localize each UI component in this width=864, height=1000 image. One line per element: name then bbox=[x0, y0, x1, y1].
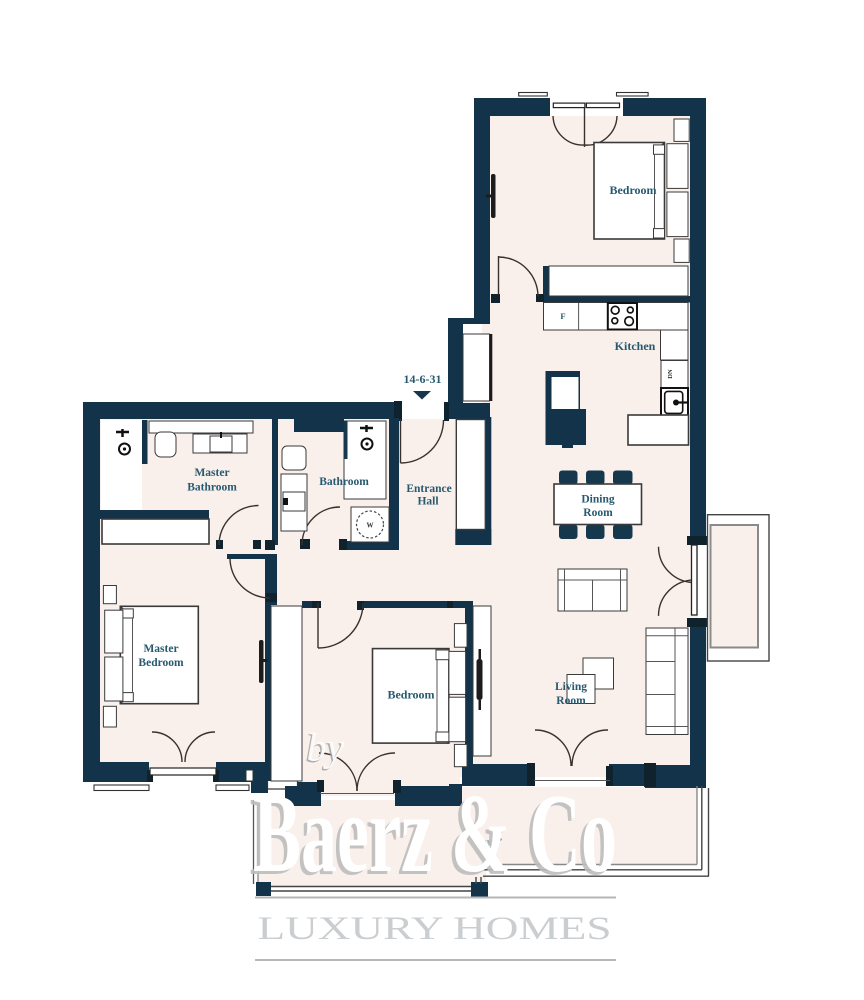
svg-text:Bedroom: Bedroom bbox=[387, 688, 434, 702]
svg-text:Entrance: Entrance bbox=[406, 483, 451, 495]
svg-text:Master: Master bbox=[194, 467, 229, 479]
svg-text:F: F bbox=[560, 311, 565, 321]
svg-text:DN: DN bbox=[667, 369, 674, 379]
svg-text:Bedroom: Bedroom bbox=[138, 657, 184, 669]
svg-text:LUXURY HOMES: LUXURY HOMES bbox=[258, 911, 612, 947]
svg-text:Living: Living bbox=[555, 681, 587, 693]
svg-text:14-6-31: 14-6-31 bbox=[404, 372, 442, 386]
svg-text:Dining: Dining bbox=[581, 494, 614, 506]
svg-text:W: W bbox=[367, 522, 374, 530]
svg-text:Kitchen: Kitchen bbox=[615, 339, 656, 353]
svg-text:Master: Master bbox=[143, 643, 178, 655]
svg-text:Bedroom: Bedroom bbox=[609, 183, 656, 197]
svg-text:Bathroom: Bathroom bbox=[187, 482, 237, 494]
svg-text:Room: Room bbox=[583, 507, 613, 519]
svg-text:Hall: Hall bbox=[417, 496, 438, 508]
svg-text:Room: Room bbox=[556, 695, 586, 707]
svg-text:Bathroom: Bathroom bbox=[319, 476, 369, 488]
svg-text:Baerz & Co: Baerz & Co bbox=[253, 772, 617, 896]
svg-text:by: by bbox=[307, 725, 345, 770]
